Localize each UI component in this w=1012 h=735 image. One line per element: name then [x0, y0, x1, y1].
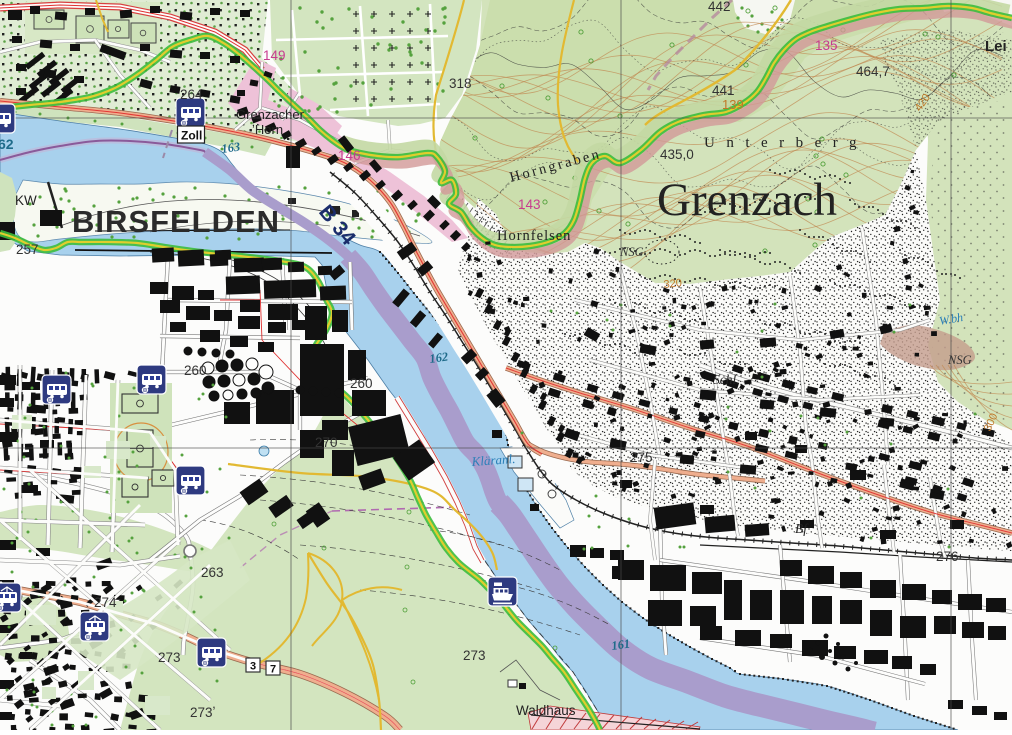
svg-text:Grenzach: Grenzach — [657, 174, 837, 226]
svg-text:276: 276 — [936, 549, 959, 564]
svg-text:270: 270 — [315, 435, 338, 450]
svg-text:BIRSFELDEN: BIRSFELDEN — [72, 204, 280, 239]
svg-text:146: 146 — [338, 148, 361, 163]
svg-text:7: 7 — [270, 664, 276, 676]
svg-text:Unterberg: Unterberg — [704, 135, 868, 151]
svg-text:Hornfelsen: Hornfelsen — [497, 228, 571, 244]
svg-text:NSG: NSG — [947, 353, 972, 367]
svg-text:275: 275 — [630, 450, 653, 465]
svg-text:274: 274 — [94, 595, 117, 610]
svg-text:KW: KW — [15, 193, 37, 208]
svg-text:149: 149 — [263, 48, 286, 63]
svg-text:273ʼ: 273ʼ — [190, 705, 216, 720]
svg-text:264: 264 — [180, 87, 203, 102]
svg-text:3: 3 — [250, 661, 256, 673]
svg-text:441: 441 — [712, 83, 735, 98]
svg-text:143: 143 — [518, 197, 541, 212]
svg-text:Zoll: Zoll — [181, 129, 202, 143]
svg-text:Grenzacher: Grenzacher — [236, 107, 305, 122]
svg-text:464,7: 464,7 — [856, 64, 890, 79]
svg-text:Waldhaus: Waldhaus — [516, 703, 576, 718]
svg-text:318: 318 — [449, 76, 472, 91]
svg-text:260: 260 — [350, 376, 373, 391]
svg-text:NSG: NSG — [619, 245, 644, 259]
svg-text:Kläranl.: Kläranl. — [470, 451, 516, 469]
svg-text:139: 139 — [722, 97, 744, 112]
svg-text:273: 273 — [158, 650, 181, 665]
svg-text:62: 62 — [0, 136, 14, 152]
svg-text:260: 260 — [184, 363, 207, 378]
svg-text:320: 320 — [663, 277, 683, 291]
svg-text:273: 273 — [463, 648, 486, 663]
svg-text:442: 442 — [708, 0, 731, 14]
svg-text:Schl.: Schl. — [713, 372, 740, 387]
svg-text:161: 161 — [610, 636, 631, 652]
svg-text:162: 162 — [428, 349, 449, 365]
svg-text:435,0: 435,0 — [660, 147, 694, 162]
svg-text:257: 257 — [16, 242, 39, 257]
svg-text:163: 163 — [220, 139, 241, 155]
svg-text:263: 263 — [201, 565, 224, 580]
svg-text:135: 135 — [815, 38, 838, 53]
svg-text:Lei: Lei — [985, 38, 1007, 55]
svg-text:ʼHorn: ʼHorn — [252, 122, 283, 137]
